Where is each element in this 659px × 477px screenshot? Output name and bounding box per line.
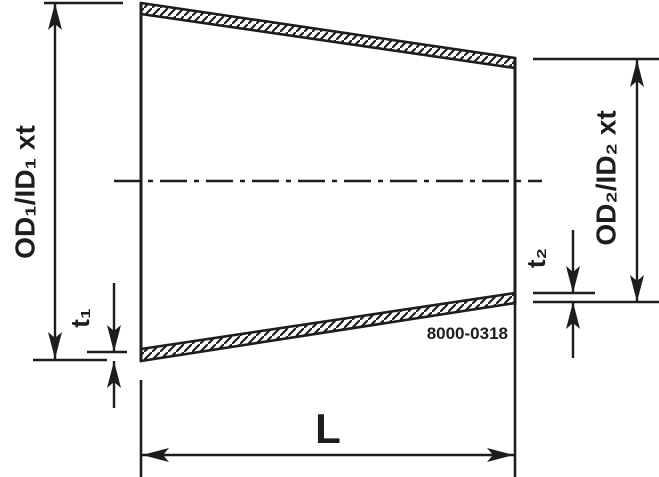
drawing-svg: OD₁/ID₁ xt t₁ OD₂/ID₂ xt t₂ (0, 0, 659, 477)
od2-dimension: OD₂/ID₂ xt (533, 59, 659, 302)
t1-label: t₁ (65, 308, 95, 327)
od2-label: OD₂/ID₂ xt (591, 110, 622, 245)
t2-label: t₂ (521, 248, 551, 268)
length-label: L (315, 405, 341, 452)
top-wall-section (141, 3, 515, 68)
drawing-number: 8000-0318 (427, 324, 508, 343)
od1-dimension: OD₁/ID₁ xt (10, 3, 124, 360)
od1-label: OD₁/ID₁ xt (10, 125, 41, 259)
t1-dimension: t₁ (65, 283, 127, 408)
t2-dimension: t₂ (521, 230, 595, 358)
reducer-technical-drawing: OD₁/ID₁ xt t₁ OD₂/ID₂ xt t₂ (0, 0, 659, 477)
